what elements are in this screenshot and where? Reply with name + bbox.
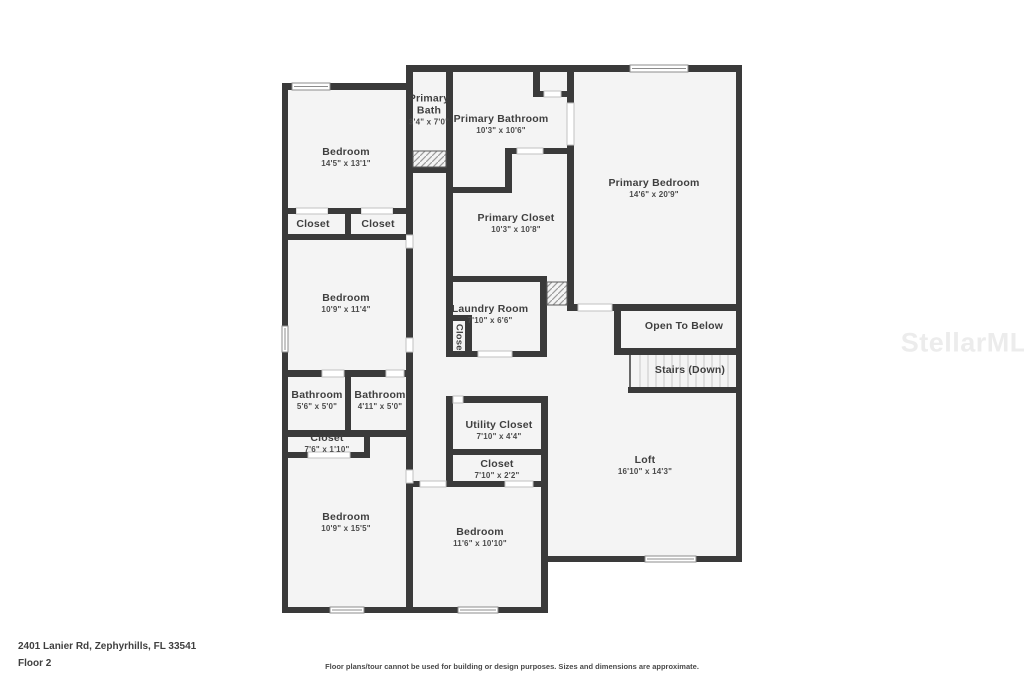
room-name: Primary Closet: [478, 213, 555, 225]
room-label-bathroom-b: Bathroom 4'11" x 5'0": [354, 390, 405, 412]
room-label-stairs-down: Stairs (Down): [655, 365, 725, 377]
room-name: Closet: [296, 219, 329, 231]
room-label-loft: Loft 16'10" x 14'3": [618, 455, 672, 477]
floorplan-drawing: [0, 0, 1024, 683]
room-label-primary-bathroom: Primary Bathroom 10'3" x 10'6": [454, 114, 549, 136]
room-label-laundry-closet: Closet: [453, 324, 464, 354]
stellar-mls-watermark: StellarMLS: [901, 328, 1024, 359]
room-label-closet-c: Closet 7'6" x 1'10": [305, 433, 350, 455]
room-label-primary-bedroom: Primary Bedroom 14'6" x 20'9": [608, 178, 699, 200]
room-dims: 4'11" x 5'0": [354, 403, 405, 412]
room-dims: 14'6" x 20'9": [608, 191, 699, 200]
property-address: 2401 Lanier Rd, Zephyrhills, FL 33541: [18, 641, 196, 652]
room-dims: 10'3" x 10'8": [478, 226, 555, 235]
room-label-utility-closet: Utility Closet 7'10" x 4'4": [466, 420, 533, 442]
room-name: Primary Bath: [402, 93, 456, 117]
room-label-bathroom-a: Bathroom 5'6" x 5'0": [291, 390, 342, 412]
room-dims: 10'9" x 15'5": [321, 525, 371, 534]
room-name: Stairs (Down): [655, 365, 725, 377]
room-name: Closet: [453, 324, 464, 354]
room-name: Bedroom: [453, 527, 507, 539]
room-dims: 11'6" x 10'10": [453, 540, 507, 549]
room-name: Closet: [305, 433, 350, 445]
room-name: Primary Bathroom: [454, 114, 549, 126]
room-label-bedroom-bottom-left: Bedroom 10'9" x 15'5": [321, 512, 371, 534]
floorplan-page: Bedroom 14'5" x 13'1" Primary Bath 3'4" …: [0, 0, 1024, 683]
room-name: Primary Bedroom: [608, 178, 699, 190]
room-name: Closet: [475, 459, 520, 471]
room-dims: 3'4" x 7'0": [402, 118, 456, 127]
room-label-primary-bath: Primary Bath 3'4" x 7'0": [402, 93, 456, 126]
disclaimer-text: Floor plans/tour cannot be used for buil…: [0, 662, 1024, 671]
room-name: Bedroom: [321, 512, 371, 524]
room-label-bedroom-mid-left: Bedroom 10'9" x 11'4": [321, 293, 370, 315]
room-name: Loft: [618, 455, 672, 467]
room-name: Bathroom: [354, 390, 405, 402]
room-label-closet-b: Closet: [361, 219, 394, 231]
room-name: Open To Below: [645, 321, 723, 333]
room-dims: 7'10" x 4'4": [466, 433, 533, 442]
room-dims: 16'10" x 14'3": [618, 468, 672, 477]
room-name: Bathroom: [291, 390, 342, 402]
room-label-laundry-room: Laundry Room 7'10" x 6'6": [452, 304, 529, 326]
room-dims: 10'3" x 10'6": [454, 127, 549, 136]
room-label-primary-closet: Primary Closet 10'3" x 10'8": [478, 213, 555, 235]
room-label-closet-a: Closet: [296, 219, 329, 231]
room-label-open-to-below: Open To Below: [645, 321, 723, 333]
room-label-bedroom-bottom-mid: Bedroom 11'6" x 10'10": [453, 527, 507, 549]
room-label-closet-d: Closet 7'10" x 2'2": [475, 459, 520, 481]
room-name: Bedroom: [321, 147, 371, 159]
room-name: Bedroom: [321, 293, 370, 305]
room-name: Utility Closet: [466, 420, 533, 432]
room-dims: 7'6" x 1'10": [305, 446, 350, 455]
room-dims: 10'9" x 11'4": [321, 306, 370, 315]
room-name: Closet: [361, 219, 394, 231]
room-dims: 14'5" x 13'1": [321, 160, 371, 169]
room-name: Laundry Room: [452, 304, 529, 316]
room-label-bedroom-top-left: Bedroom 14'5" x 13'1": [321, 147, 371, 169]
room-dims: 7'10" x 2'2": [475, 472, 520, 481]
room-dims: 5'6" x 5'0": [291, 403, 342, 412]
